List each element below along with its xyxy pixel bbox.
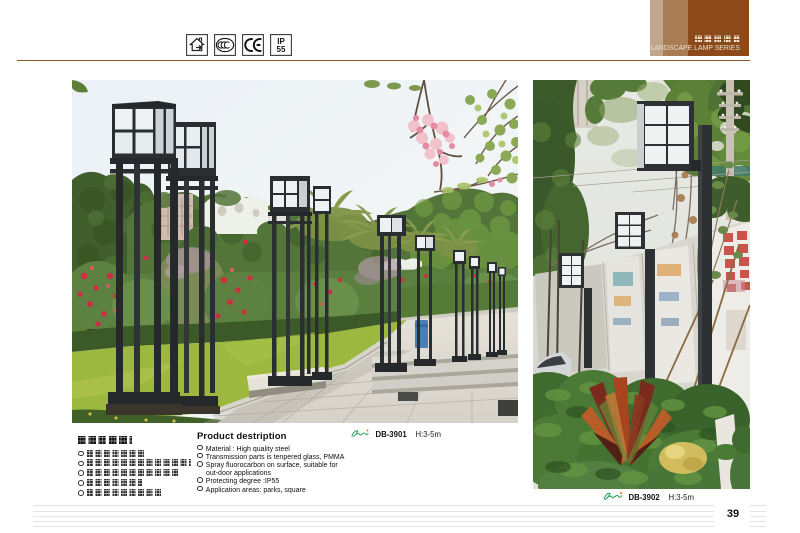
svg-text:55: 55 [277, 45, 286, 54]
